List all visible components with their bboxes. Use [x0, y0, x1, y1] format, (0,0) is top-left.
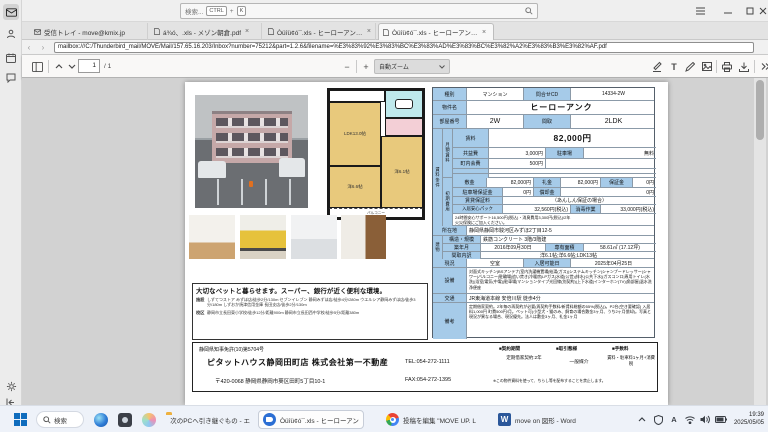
tab-bar: 受信トレイ - move@kmix.jp á¾ó、.xls - メゾン朝倉.pd… [22, 22, 768, 40]
divider [754, 60, 755, 73]
scrollbar-thumb[interactable] [756, 80, 764, 140]
cell-access-label: 交通 [433, 294, 467, 302]
taskbar-word-window[interactable]: W move on 図形 - Word [494, 410, 580, 429]
close-window-button[interactable] [757, 0, 768, 22]
settings-gear-icon[interactable] [3, 378, 19, 394]
building-shape [212, 111, 292, 163]
addressbook-space-icon[interactable] [3, 26, 19, 42]
cell-remarks-label: 備考 [433, 303, 467, 339]
taskbar-explorer-window[interactable]: 次のPCへ引き継ぐもの - エ [162, 410, 254, 429]
forward-icon[interactable]: › [36, 43, 50, 52]
cell-name-label: 物件名 [433, 101, 467, 114]
page-total-label: / 1 [104, 63, 111, 70]
calendar-space-icon[interactable] [3, 50, 19, 66]
cell-rent-value: 82,000円 [489, 129, 656, 147]
fee-header: ■手数料 [612, 346, 629, 352]
taskbar: 検索 次のPCへ引き継ぐもの - エ Òüîü¢ó¯.xls - ヒーローアン … [0, 405, 768, 432]
cell-room-breakdown-label: 間取内訳 [443, 252, 481, 259]
cell-deposit-label: 敷金 [453, 178, 487, 187]
more-tools-icon[interactable] [758, 60, 768, 73]
tab-label: á¾ó、.xls - メゾン朝倉.pdf [163, 27, 241, 37]
license-number: 静岡県知事免許(10)第5704号 [199, 346, 264, 353]
taskbar-thunderbird-window-active[interactable]: Òüîü¢ó¯.xls - ヒーローアン [258, 410, 364, 429]
menu-button[interactable] [688, 0, 712, 22]
chrome-window-title: 投稿を編集 "MOVE UP. L [403, 415, 476, 425]
cell-parking-label: 駐車場 [546, 148, 584, 158]
pdf-page: LDK13.0帖 洋6.1帖 洋6.6帖 バルコニー 大切なペットと暮らせます。… [185, 82, 668, 405]
building-floor [216, 133, 288, 143]
cell-rent-guarantee-value: （あんしん保証の場合） [503, 197, 656, 204]
agency-tel: TEL:054-272-1111 [405, 359, 450, 365]
agency-address: 〒420-0068 静岡県静岡市葵区田町5丁目10-1 [215, 377, 325, 385]
cell-disinfection-value: 33,000円(税込) [601, 205, 656, 213]
ime-mode-indicator[interactable]: A [668, 411, 680, 428]
cell-type-value: マンション [467, 88, 524, 100]
deal-type-value: 一般媒介 [556, 358, 602, 365]
cell-empty [489, 169, 656, 173]
explorer-window-title: 次のPCへ引き継ぐもの - エ [170, 415, 250, 425]
tab-pdf-active[interactable]: Òüîü¢ó¯.xls - ヒーローアンク.p × [378, 23, 494, 40]
cell-guarantee-deposit-value: 0円 [633, 178, 656, 187]
taskbar-search-label: 検索 [54, 415, 67, 425]
pdf-viewport[interactable]: LDK13.0帖 洋6.1帖 洋6.6帖 バルコニー 大切なペットと暮らせます。… [22, 78, 768, 405]
key-ctrl: CTRL [206, 6, 226, 16]
edge-icon[interactable] [92, 411, 109, 428]
cell-equipment-value: 対面式キッチン|BSアンテナ|室内洗濯機置場|給湯(ガス)|システムキッチン|シ… [467, 268, 656, 293]
zoom-out-icon[interactable]: − [340, 60, 354, 73]
cell-equipment-label: 設備 [433, 268, 467, 293]
save-icon[interactable] [737, 60, 751, 73]
building-floor [216, 118, 288, 128]
tab-pdf-2[interactable]: Òüîü¢ó¯.xls - ヒーローアンク.p × [264, 23, 376, 40]
cell-disinfection-label: 消毒作業 [571, 205, 601, 213]
contract-period-header: ■契約期間 [499, 346, 520, 352]
tray-date: 2025/05/05 [734, 420, 764, 428]
cell-type-label: 種別 [433, 88, 467, 100]
divider [716, 60, 717, 73]
cell-name-value: ヒーローアンク [467, 101, 656, 114]
copilot-icon[interactable] [140, 411, 157, 428]
spaces-toolbar [0, 0, 22, 405]
entry-room [329, 90, 385, 102]
text-tool-icon[interactable]: T [667, 60, 681, 73]
pdf-tab-icon [154, 28, 160, 35]
search-icon [43, 416, 51, 424]
deal-type-header: ■取引態様 [556, 346, 577, 352]
taskbar-search[interactable]: 検索 [36, 411, 84, 428]
bathroom [385, 90, 423, 118]
thunderbird-icon [263, 413, 276, 426]
photo-washstand [341, 215, 386, 259]
highlight-tool-icon[interactable] [650, 60, 664, 73]
agency-box: 静岡県知事免許(10)第5704号 ■契約期間 ■取引態様 ■手数料 ピタットハ… [192, 342, 658, 392]
cell-location-value: 静岡県静岡市駿河区みずほ2丁目12-5 [467, 226, 656, 235]
next-page-icon[interactable] [65, 60, 79, 73]
word-window-title: move on 図形 - Word [515, 415, 576, 425]
photo-bathroom [291, 215, 337, 259]
cell-keymoney-value: 82,000円 [561, 178, 601, 187]
cell-town-fee-label: 町内会費 [453, 159, 489, 168]
cell-status-value: 空室 [467, 259, 524, 267]
fee-value: 賃料・駐車料1ヶ月+消費税 [607, 355, 655, 367]
cell-inquiry-cd-label: 問合せCD [524, 88, 571, 100]
mail-space-icon[interactable] [3, 4, 19, 20]
note-line-2: 火災保険にご加入ください。 [455, 220, 654, 225]
school-district-label: 校区 [196, 310, 207, 316]
cell-empty [546, 159, 656, 168]
tab-pdf-1[interactable]: á¾ó、.xls - メゾン朝倉.pdf × [150, 23, 262, 40]
cell-location-label: 所在地 [433, 226, 467, 235]
divider [356, 60, 357, 73]
cell-amortization-value: 0円 [561, 188, 656, 196]
group-initial-cost: 初期費用 [443, 178, 453, 226]
zoom-select-value: 自動ズーム [379, 62, 409, 71]
cell-room-label: 部屋番号 [433, 115, 467, 128]
cell-anshin-pack-value: 32,560円(税込) [503, 205, 571, 213]
description-headline: 大切なペットと暮らせます。スーパー、銀行が近く便利な環境。 [196, 286, 424, 295]
photo-living [189, 215, 235, 259]
car-shape [198, 161, 226, 178]
cell-common-fee-label: 共益費 [453, 148, 489, 158]
wifi-icon[interactable] [684, 411, 696, 428]
cell-room-value: 2W [467, 115, 524, 128]
search-icon [525, 7, 533, 15]
previous-page-icon[interactable] [52, 60, 66, 73]
cell-parking-deposit-value: 0円 [503, 188, 534, 196]
screen: { "colors": {"cell_blue": "#a6cbe9", "ta… [0, 0, 768, 432]
image-tool-icon[interactable] [700, 60, 714, 73]
mail-tab-icon [34, 29, 41, 35]
group-rent-conditions: 賃料条件 [433, 129, 443, 226]
tray-chevron-up-icon[interactable] [636, 411, 648, 428]
taskbar-chrome-window[interactable]: 投稿を編集 "MOVE UP. L [382, 410, 480, 429]
speaker-icon[interactable] [699, 411, 711, 428]
bedroom2-label: 洋6.1帖 [394, 169, 409, 175]
divider [48, 60, 49, 73]
url-input[interactable]: mailbox:///C:/Thunderbird_mail/MOVE/Mail… [54, 42, 754, 53]
cell-rent-label: 賃料 [453, 129, 489, 147]
cell-room-breakdown-value: 洋6.1帖;洋6.6帖;LDK13帖 [481, 252, 656, 259]
washroom [385, 118, 423, 136]
cell-access-value: JR東海道本線 安倍川駅 徒歩4分 [467, 294, 656, 302]
cell-parking-value: 無料 [584, 148, 656, 158]
word-icon: W [498, 413, 511, 426]
cell-initial-cost-note: 24時間安心サポート16,500円(税込)・消臭費用3,300円(税込)/2年 … [453, 214, 656, 226]
tab-close-icon[interactable]: × [244, 28, 249, 35]
tab-label: Òüîü¢ó¯.xls - ヒーローアンク.p [277, 27, 363, 37]
cell-structure-label: 構造・規模 [443, 236, 481, 243]
start-button[interactable] [12, 411, 29, 428]
building-floor [216, 148, 288, 158]
thunderbird-window-title: Òüîü¢ó¯.xls - ヒーローアン [280, 415, 359, 425]
zoom-select[interactable]: 自動ズーム [374, 59, 450, 74]
cell-status-label: 現況 [433, 259, 467, 267]
chat-space-icon[interactable] [3, 70, 19, 86]
facilities-label: 施設 [196, 297, 207, 308]
cell-anshin-pack-label: 入居安心パック [453, 205, 503, 213]
draw-tool-icon[interactable] [683, 60, 697, 73]
school-district-text: 静岡市立長田東小学校/徒歩12分/距離900m 静岡市立長田西中学校/徒歩5分/… [207, 310, 359, 316]
tray-clock[interactable]: 19:39 2025/05/05 [734, 412, 764, 427]
print-icon[interactable] [720, 60, 734, 73]
tray-time: 19:39 [734, 412, 764, 420]
ldk-room: LDK13.0帖 [329, 102, 381, 166]
agency-fax: FAX:054-272-1395 [405, 377, 451, 383]
cell-amortization-label: 償却金 [534, 188, 561, 196]
chevron-down-icon [439, 65, 445, 69]
cell-area-label: 専有面積 [546, 244, 584, 251]
search-placeholder: 検索... [185, 6, 203, 16]
agency-name: ピタットハウス静岡田町店 株式会社第一不動産 [207, 357, 388, 368]
key-plus: + [230, 8, 234, 15]
cell-inquiry-cd-value: 14334-2W [571, 88, 656, 100]
location-bar: ‹ › mailbox:///C:/Thunderbird_mail/MOVE/… [22, 40, 768, 55]
bedroom-1: 洋6.6帖 [329, 166, 381, 208]
car-shape [279, 158, 305, 177]
photo-kitchen [240, 215, 286, 259]
cell-deposit-value: 82,000円 [487, 178, 534, 187]
bedroom-2: 洋6.1帖 [381, 136, 423, 208]
global-search-input[interactable]: 検索... CTRL + K [180, 3, 538, 19]
bathtub-shape [395, 99, 413, 109]
titlebar: 検索... CTRL + K [0, 0, 768, 22]
ldk-label: LDK13.0帖 [344, 131, 366, 137]
tab-label: Òüîü¢ó¯.xls - ヒーローアンク.p [392, 27, 478, 37]
pdf-toolbar: 1 / 1 − + 自動ズーム T [22, 55, 768, 78]
exterior-photo [195, 95, 308, 208]
cell-common-fee-value: 3,000円 [489, 148, 546, 158]
cell-structure-value: 鉄筋コンクリート 3階/3階建 [481, 236, 656, 243]
pdf-tab-icon [383, 29, 389, 36]
page-number-input[interactable]: 1 [78, 59, 100, 73]
traffic-cone [249, 181, 253, 187]
floor-plan: LDK13.0帖 洋6.1帖 洋6.6帖 バルコニー [327, 88, 425, 220]
chrome-icon [386, 413, 399, 426]
cell-guarantee-deposit-label: 保証金 [601, 178, 633, 187]
cell-layout-value: 2LDK [571, 115, 656, 128]
tab-inbox[interactable]: 受信トレイ - move@kmix.jp [30, 23, 148, 40]
property-table: 種別 マンション 問合せCD 14334-2W 物件名 ヒーローアンク 部屋番号… [432, 87, 655, 338]
cell-rent-guarantee-label: 賃貸保証料 [453, 197, 503, 204]
cell-built-date-label: 築年月 [443, 244, 481, 251]
group-building: 建物 [433, 236, 443, 259]
zoom-in-icon[interactable]: + [359, 60, 373, 73]
cell-built-date-value: 2016年09月30日 [481, 244, 546, 251]
tab-close-icon[interactable]: × [481, 29, 486, 36]
cell-remarks-value: 定期借家契約。2年毎の再契約が必要(再契約手数料/新賃料総額の55%(税込))。… [467, 303, 656, 339]
tab-label: 受信トレイ - move@kmix.jp [44, 27, 125, 37]
tray-shield-icon[interactable] [652, 411, 664, 428]
cell-keymoney-label: 礼金 [534, 178, 561, 187]
bedroom1-label: 洋6.6帖 [347, 184, 362, 190]
group-monthly-rent: 月額賃料 [443, 129, 453, 177]
description-box: 大切なペットと暮らせます。スーパー、銀行が近く便利な環境。 施設 しずてつストア… [192, 283, 428, 340]
cell-movein-label: 入居可能日 [524, 259, 571, 267]
contract-period-value: 定期借家契約:2年 [499, 355, 549, 361]
pdf-tab-icon [268, 28, 274, 35]
key-k: K [237, 6, 247, 16]
facilities-text: しずてつストア みずほ店/徒歩2分/130m セブンイレブン 静岡みずほ店/徒歩… [207, 297, 424, 308]
footer-notice: ※この物件資料を使って、ちらし等を配布することを禁止します。 [493, 378, 655, 384]
minimize-button[interactable] [716, 0, 740, 22]
battery-icon[interactable] [714, 411, 728, 428]
cell-parking-deposit-label: 駐車場保証金 [453, 188, 503, 196]
cell-empty [453, 169, 489, 173]
sidebar-toggle-icon[interactable] [30, 60, 44, 73]
cell-layout-label: 間取 [524, 115, 571, 128]
cell-movein-value: 2025年04月25日 [571, 259, 656, 267]
cell-town-fee-value: 500円 [489, 159, 546, 168]
cell-area-value: 58.61㎡ (17.12坪) [584, 244, 656, 251]
camera-icon[interactable] [116, 411, 133, 428]
back-icon[interactable]: ‹ [22, 43, 36, 52]
tab-close-icon[interactable]: × [366, 28, 371, 35]
